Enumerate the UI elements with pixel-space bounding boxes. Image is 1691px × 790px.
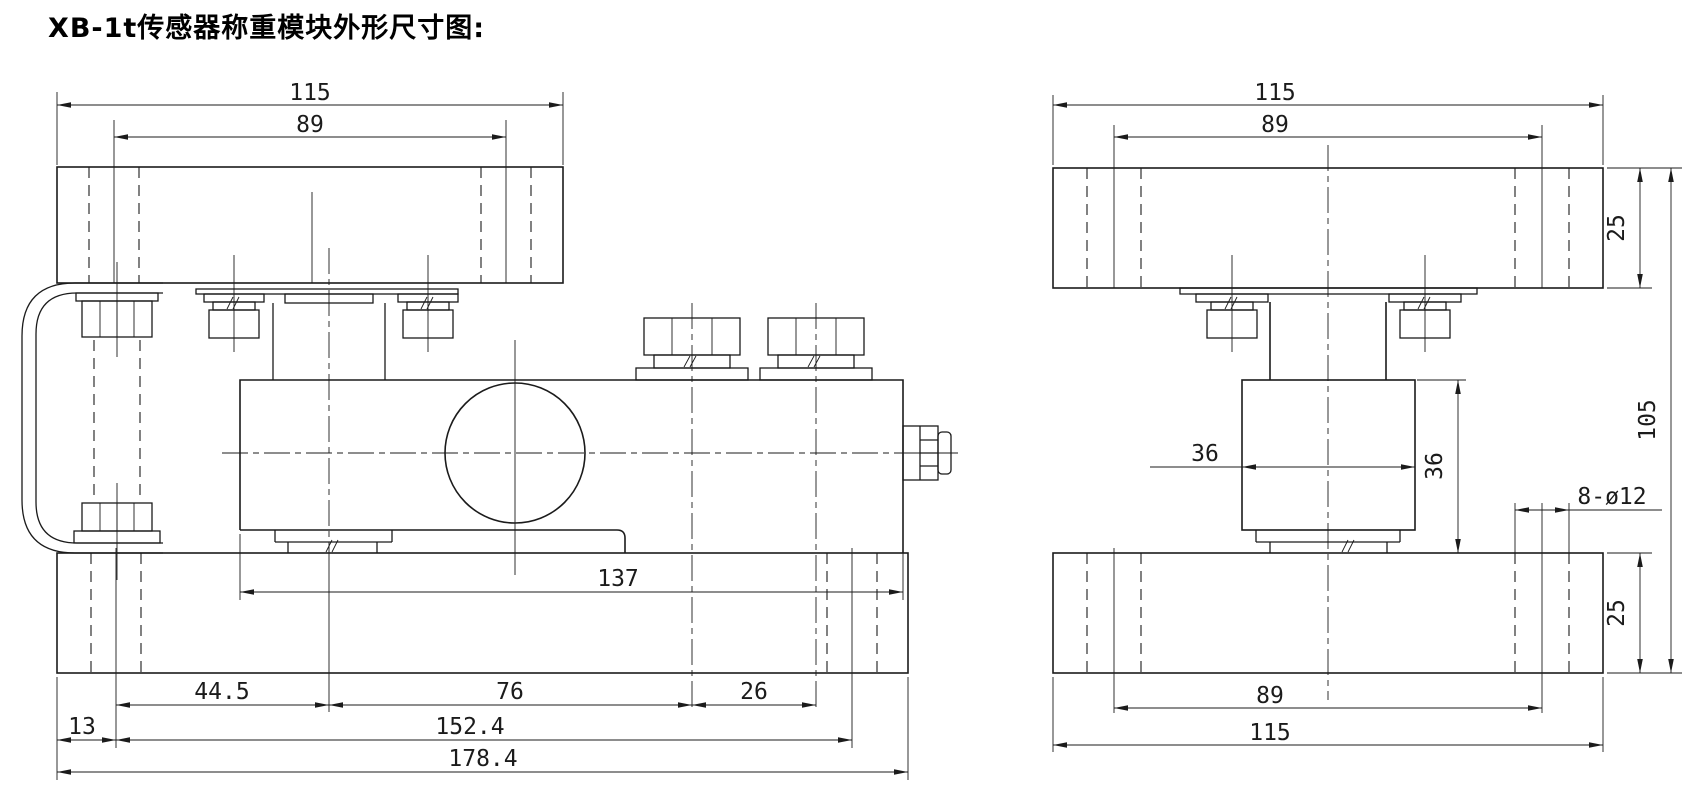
dim-group-right: 25 105 25 <box>1604 168 1682 673</box>
load-cell-body <box>222 340 958 575</box>
bottom-plate <box>57 340 908 748</box>
thread-hatch <box>808 356 820 367</box>
dim-bolt-spacing: 26 <box>740 679 768 705</box>
dim-bottom-hole-spacing: 89 <box>1256 683 1284 709</box>
dim-group-block-width: 36 <box>1150 441 1415 467</box>
dim-block-width: 36 <box>1191 441 1219 467</box>
dim-hole-to-center: 44.5 <box>194 679 249 705</box>
hold-down-strap <box>22 283 163 553</box>
mounting-strip <box>1180 288 1477 294</box>
dim-top-hole-spacing: 89 <box>296 112 324 138</box>
dim-top-plate-width: 115 <box>289 80 331 106</box>
thread-hatch <box>1225 297 1237 309</box>
dim-center-to-bolt: 76 <box>496 679 524 705</box>
dim-group-block-height: 36 <box>1417 380 1466 553</box>
dim-edge-to-hole: 13 <box>68 714 96 740</box>
clamp-bolt-right <box>760 303 872 712</box>
dim-group-bottom: 44.5 76 26 13 152.4 178.4 <box>57 568 908 780</box>
dim-bottom-hole-spacing: 152.4 <box>435 714 504 740</box>
dim-block-height: 36 <box>1422 452 1448 480</box>
dim-bottom-plate-width: 115 <box>1249 720 1291 746</box>
end-view: 115 89 36 36 8-ø12 <box>1053 80 1682 752</box>
dim-overall-height: 105 <box>1635 399 1661 441</box>
load-boss <box>273 248 385 568</box>
side-view: 115 89 137 44.5 76 26 <box>22 80 958 780</box>
dim-top-hole-spacing: 89 <box>1261 112 1289 138</box>
strap-bolt-bottom <box>74 483 160 580</box>
dim-mounting-holes: 8-ø12 <box>1577 484 1646 510</box>
clamp-bolt-left <box>636 303 748 712</box>
plate-bolt-right <box>398 255 458 352</box>
dim-group-body-length: 137 <box>240 534 903 600</box>
dim-bottom-plate-thickness: 25 <box>1604 599 1630 627</box>
plate-bolt-right <box>1389 255 1461 352</box>
body-foot <box>275 530 392 553</box>
dim-top-plate-thickness: 25 <box>1604 214 1630 242</box>
strap-bolt-top <box>76 262 158 357</box>
dim-group-top: 115 89 <box>57 80 563 165</box>
plate-bolt-left <box>1196 255 1268 352</box>
dim-top-plate-width: 115 <box>1254 80 1296 106</box>
dim-body-length: 137 <box>597 566 639 592</box>
thread-hatch <box>421 297 433 309</box>
dim-group-mounting-holes: 8-ø12 <box>1515 484 1662 510</box>
dim-bottom-plate-length: 178.4 <box>448 746 517 772</box>
technical-drawing-page: XB-1t传感器称重模块外形尺寸图: <box>0 0 1691 790</box>
dim-group-bottom: 89 115 <box>1053 677 1603 752</box>
thread-hatch <box>227 297 239 309</box>
top-plate <box>57 120 563 283</box>
mounting-strip <box>196 289 458 294</box>
thread-hatch <box>684 356 696 367</box>
dimension-drawing: 115 89 137 44.5 76 26 <box>0 0 1691 790</box>
thread-hatch <box>1418 297 1430 309</box>
load-block <box>1242 380 1415 553</box>
plate-bolt-left <box>204 255 264 352</box>
